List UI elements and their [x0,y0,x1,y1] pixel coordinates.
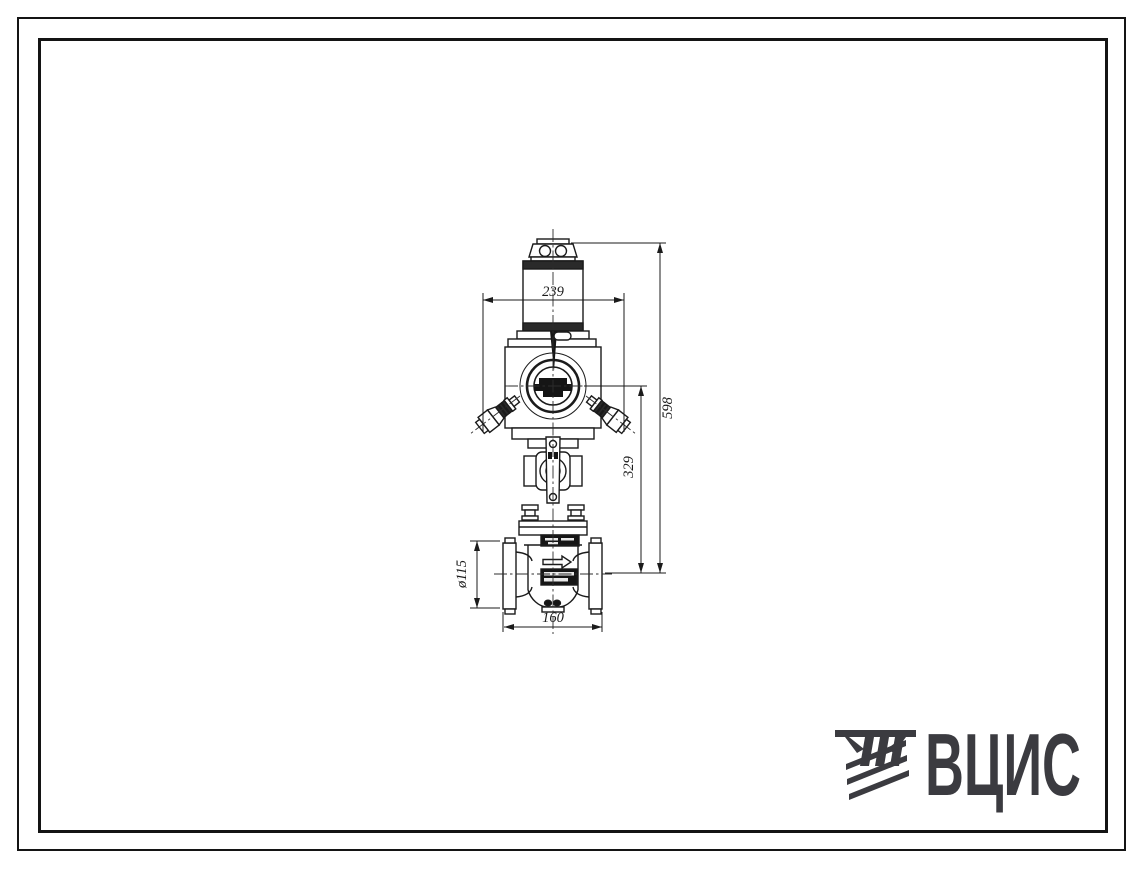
vcis-logo-emblem [835,730,916,800]
vcis-logo: ВЦИС [835,715,1081,814]
valve-body [503,538,602,614]
valve-technical-drawing: 239 598 329 160 ø115 ВЦИС [0,0,1139,869]
dim-flange-diameter [470,541,500,608]
valve-nameplate [541,569,577,585]
dim-label-mid-height: 329 [621,455,637,479]
drawing-sheet: 239 598 329 160 ø115 ВЦИС [0,0,1139,869]
dim-label-top-width: 239 [542,284,565,300]
dim-label-flange-diameter: ø115 [454,560,470,589]
vcis-logo-text: ВЦИС [925,715,1081,814]
latch-lever [554,332,571,340]
dim-label-overall-height: 598 [660,396,676,419]
flow-direction-arrow [543,556,571,568]
dim-label-bottom-width: 160 [542,610,565,626]
